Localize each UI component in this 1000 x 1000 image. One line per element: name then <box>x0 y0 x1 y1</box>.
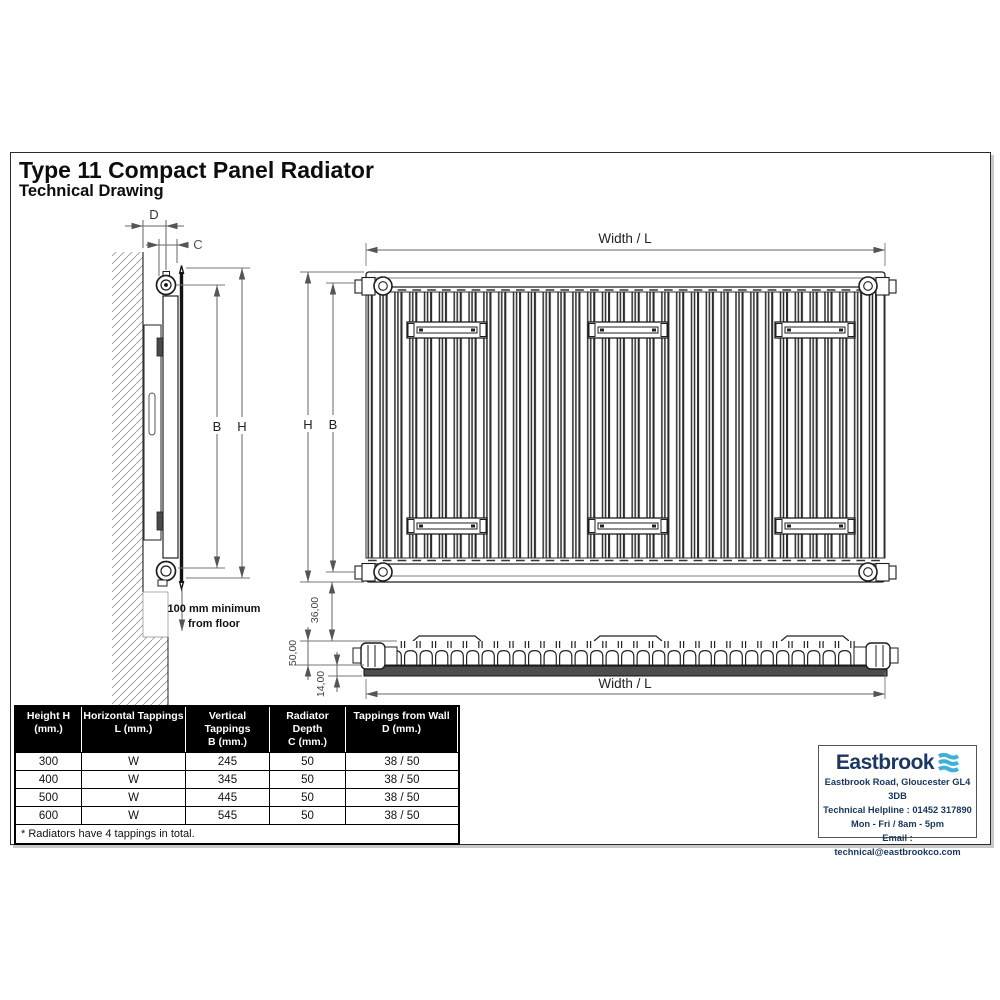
table-cell: W <box>82 788 186 806</box>
dim-14-label: 14,00 <box>315 671 327 697</box>
table-header-height: Height H (mm.) <box>16 707 82 752</box>
table-cell: 38 / 50 <box>346 752 458 770</box>
profile-view: 36,00 50,00 14,00 Width / L <box>287 582 898 699</box>
table-cell: 545 <box>186 806 270 824</box>
table-footnote: * Radiators have 4 tappings in total. <box>16 824 458 843</box>
brand-box: Eastbrook Eastbrook Road, Gloucester GL4… <box>818 745 977 838</box>
table-cell: 345 <box>186 770 270 788</box>
front-top-right-valve <box>859 277 896 295</box>
technical-drawing-page: Type 11 Compact Panel Radiator Technical… <box>0 0 1000 1000</box>
table-cell: 445 <box>186 788 270 806</box>
side-bottom-tapping-valve <box>157 562 176 587</box>
front-bottom-right-valve <box>859 563 896 581</box>
table-header-horizontal-tappings: Horizontal Tappings L (mm.) <box>82 707 186 752</box>
dim-b-side-label: B <box>213 419 222 434</box>
side-wall-bracket <box>144 325 164 540</box>
bracket-top-left <box>407 322 487 338</box>
table-cell: 38 / 50 <box>346 770 458 788</box>
dim-width-top-label: Width / L <box>598 231 652 246</box>
dim-b-front-label: B <box>329 417 338 432</box>
table-header-tappings-from-wall: Tappings from Wall D (mm.) <box>346 707 458 752</box>
bracket-bottom-right <box>775 518 855 534</box>
brand-address: Eastbrook Road, Gloucester GL4 3DB <box>819 775 976 803</box>
bracket-bottom-center <box>588 518 668 534</box>
dim-h-side-label: H <box>237 419 246 434</box>
brand-logo: Eastbrook <box>836 751 959 775</box>
table-cell: 400 <box>16 770 82 788</box>
table-cell: W <box>82 752 186 770</box>
dim-c <box>146 239 188 276</box>
dim-50-label: 50,00 <box>287 640 299 666</box>
table-cell: 50 <box>270 806 346 824</box>
bracket-top-center <box>588 322 668 338</box>
dim-36-label: 36,00 <box>309 597 321 623</box>
table-cell: 38 / 50 <box>346 806 458 824</box>
wall-hatch <box>112 252 143 707</box>
dim-d-label: D <box>149 207 158 222</box>
front-bottom-rail <box>366 564 885 582</box>
bracket-top-right <box>775 322 855 338</box>
bracket-bottom-left <box>407 518 487 534</box>
profile-panel-plate <box>364 666 887 676</box>
table-header-vertical-tappings: Vertical Tappings B (mm.) <box>186 707 270 752</box>
front-view: Width / L <box>300 231 896 582</box>
spec-table-grid: Height H (mm.) Horizontal Tappings L (mm… <box>16 707 458 843</box>
table-cell: 38 / 50 <box>346 788 458 806</box>
floor-note-line2: from floor <box>188 618 241 630</box>
table-cell: 300 <box>16 752 82 770</box>
profile-fins <box>397 641 857 665</box>
brand-helpline: Technical Helpline : 01452 317890 <box>823 803 972 817</box>
brand-hours: Mon - Fri / 8am - 5pm <box>851 817 944 831</box>
profile-right-valve <box>854 643 898 669</box>
table-cell: W <box>82 806 186 824</box>
dim-width-bottom-label: Width / L <box>598 676 652 691</box>
brand-waves-icon <box>938 753 959 773</box>
brand-email: Email : technical@eastbrookco.com <box>819 831 976 859</box>
side-panel-body <box>163 296 178 558</box>
spec-table: Height H (mm.) Horizontal Tappings L (mm… <box>14 705 460 845</box>
floor-gap-notch <box>143 592 168 637</box>
profile-tab-right <box>781 636 849 641</box>
dim-width-top <box>366 243 885 266</box>
table-cell: 600 <box>16 806 82 824</box>
table-header-radiator-depth: Radiator Depth C (mm.) <box>270 707 346 752</box>
table-cell: 50 <box>270 770 346 788</box>
profile-tab-center <box>594 636 662 641</box>
table-cell: 50 <box>270 788 346 806</box>
floor-note-line1: 100 mm minimum <box>168 603 261 615</box>
floor-hatch <box>143 637 168 707</box>
dim-h-front-label: H <box>303 417 312 432</box>
side-view: D C B H <box>112 207 261 707</box>
dim-c-label: C <box>193 237 202 252</box>
front-top-left-valve <box>355 277 392 295</box>
table-cell: 245 <box>186 752 270 770</box>
brand-name: Eastbrook <box>836 751 934 775</box>
profile-tab-left <box>413 636 481 641</box>
table-cell: 50 <box>270 752 346 770</box>
front-top-rail <box>366 272 885 287</box>
table-cell: 500 <box>16 788 82 806</box>
table-cell: W <box>82 770 186 788</box>
front-bottom-left-valve <box>355 563 392 581</box>
